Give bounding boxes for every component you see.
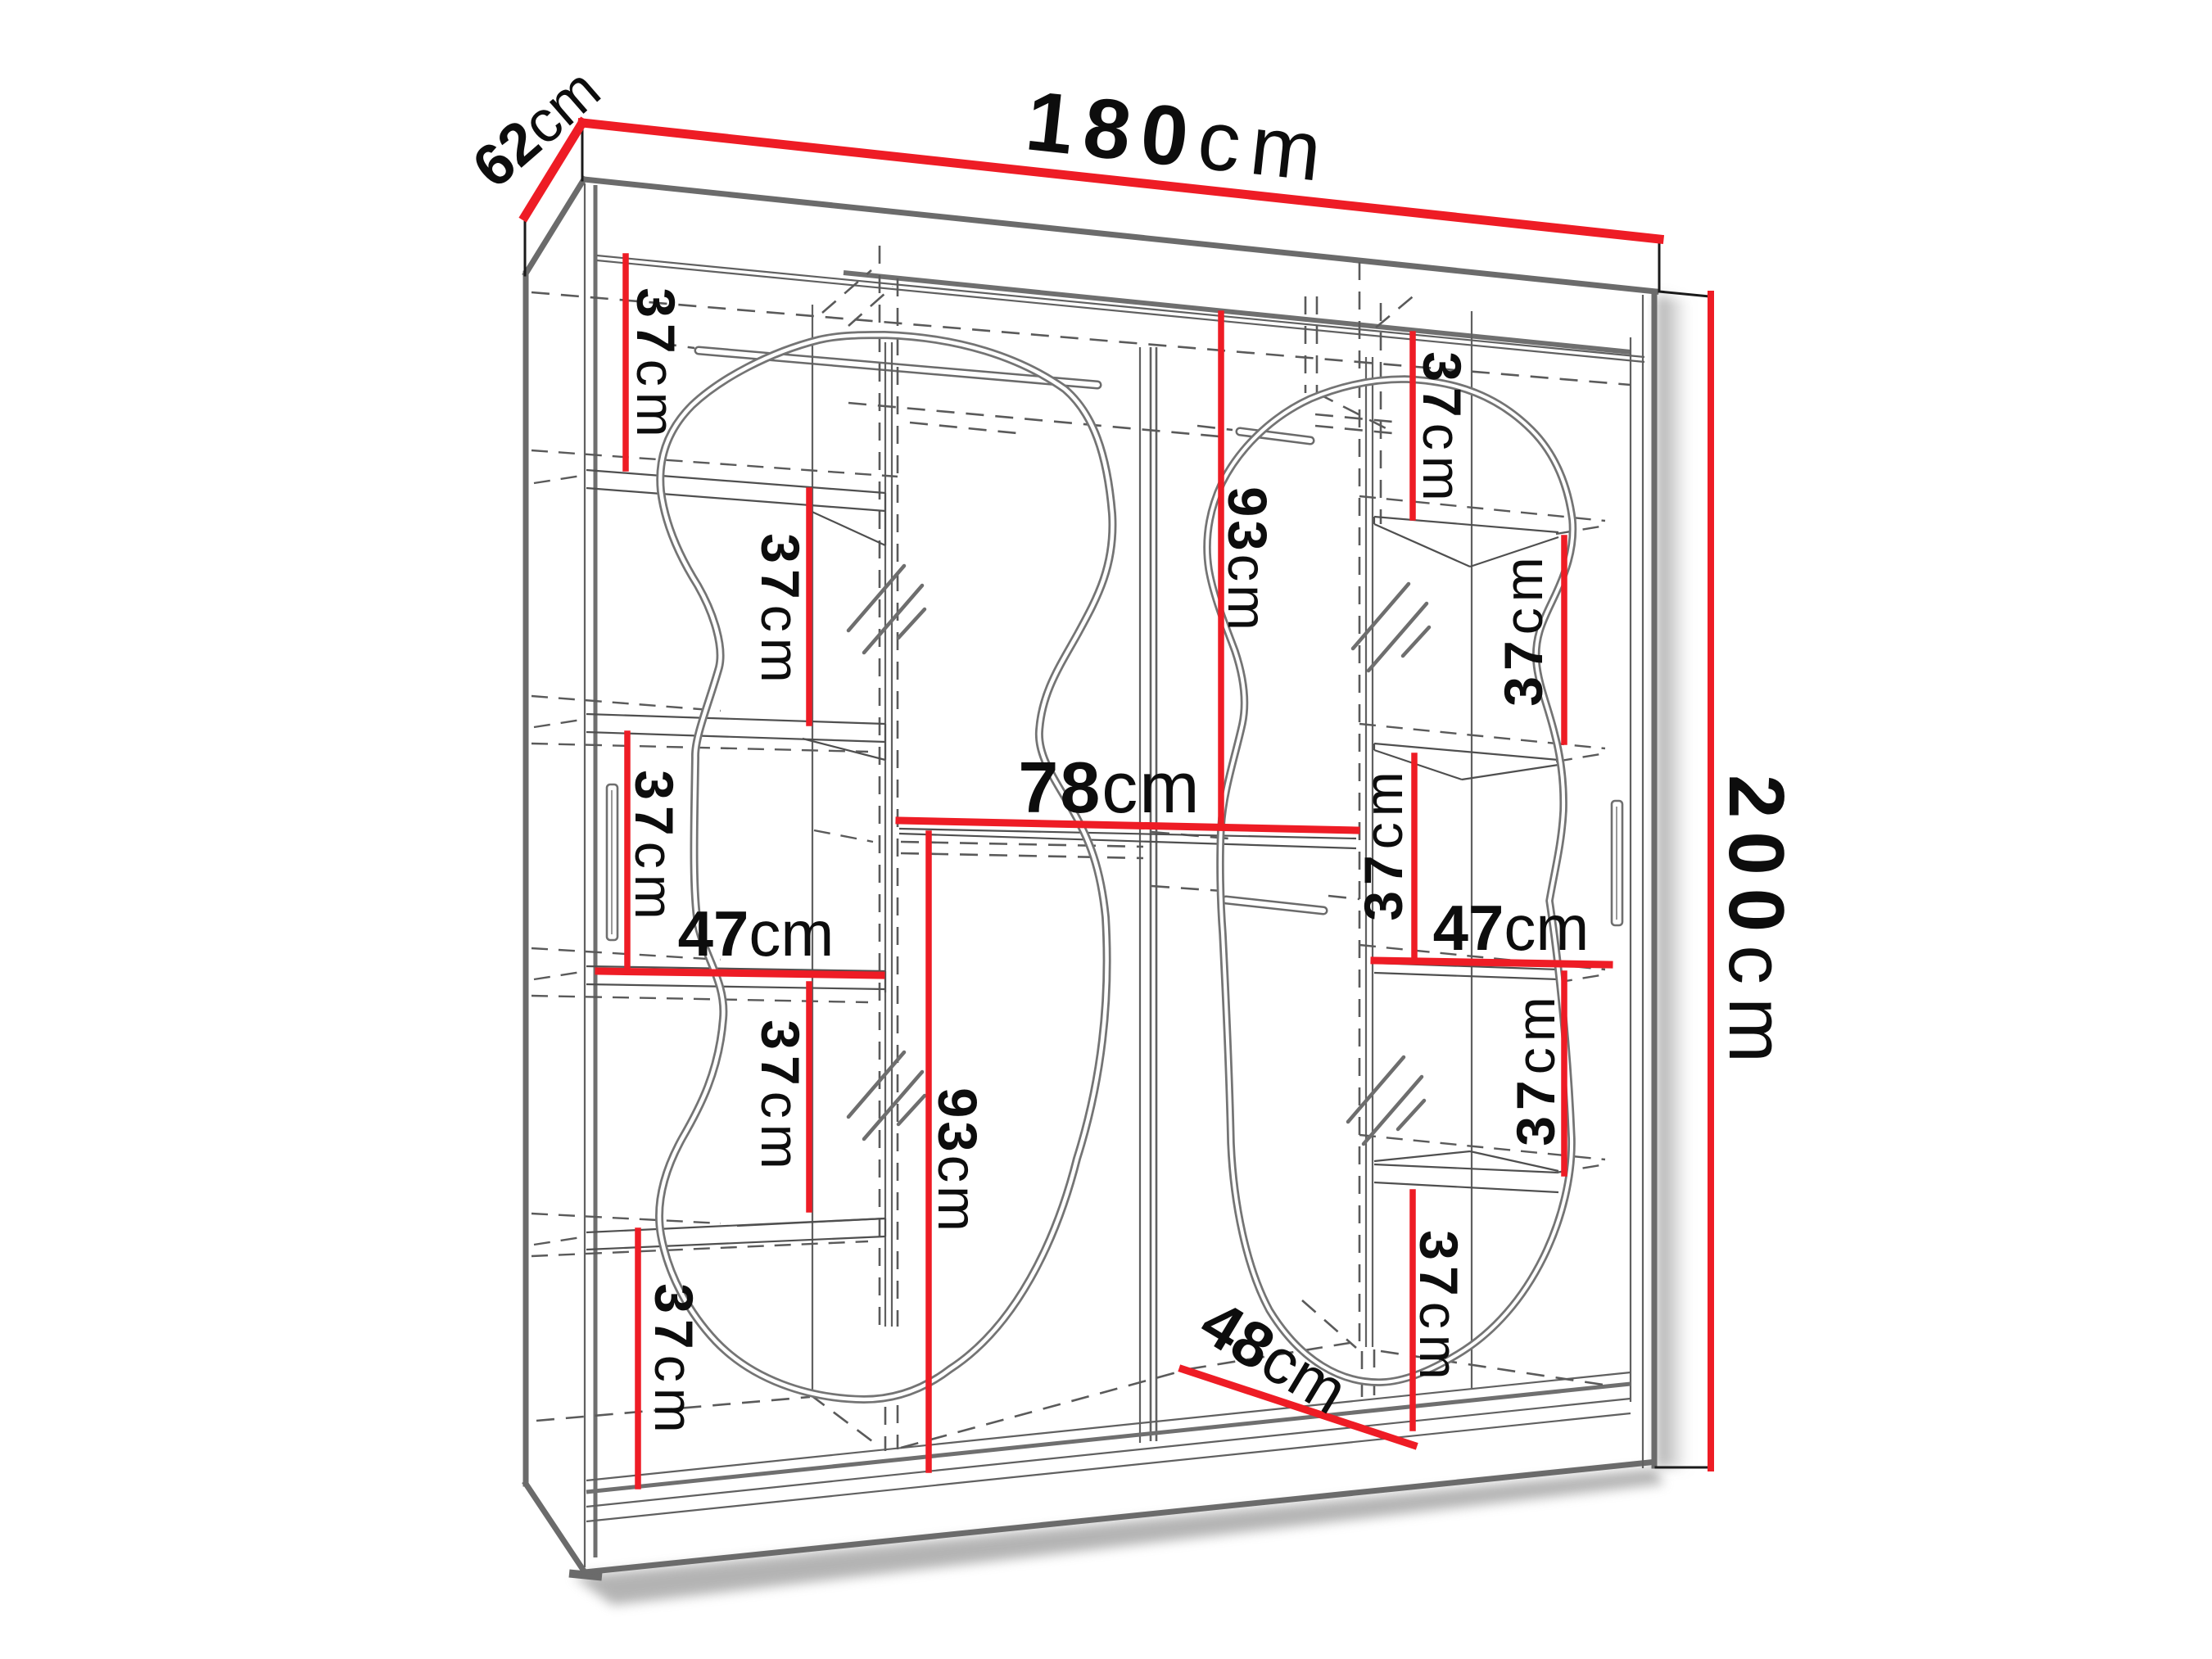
svg-text:37cm: 37cm <box>750 1019 811 1174</box>
svg-text:78cm: 78cm <box>1018 747 1201 828</box>
svg-text:37cm: 37cm <box>624 770 685 924</box>
svg-text:47cm: 47cm <box>1433 892 1590 964</box>
svg-text:37cm: 37cm <box>1412 351 1472 506</box>
svg-text:37cm: 37cm <box>1505 991 1566 1146</box>
svg-text:37cm: 37cm <box>750 533 811 688</box>
svg-text:37cm: 37cm <box>644 1283 704 1438</box>
svg-text:37cm: 37cm <box>626 287 686 442</box>
svg-text:37cm: 37cm <box>1493 551 1554 706</box>
svg-text:37cm: 37cm <box>1353 766 1414 920</box>
svg-text:93cm: 93cm <box>926 1087 988 1235</box>
svg-text:47cm: 47cm <box>678 897 835 970</box>
svg-text:200cm: 200cm <box>1712 775 1800 1076</box>
svg-text:93cm: 93cm <box>1216 486 1278 634</box>
svg-text:37cm: 37cm <box>1409 1230 1469 1385</box>
